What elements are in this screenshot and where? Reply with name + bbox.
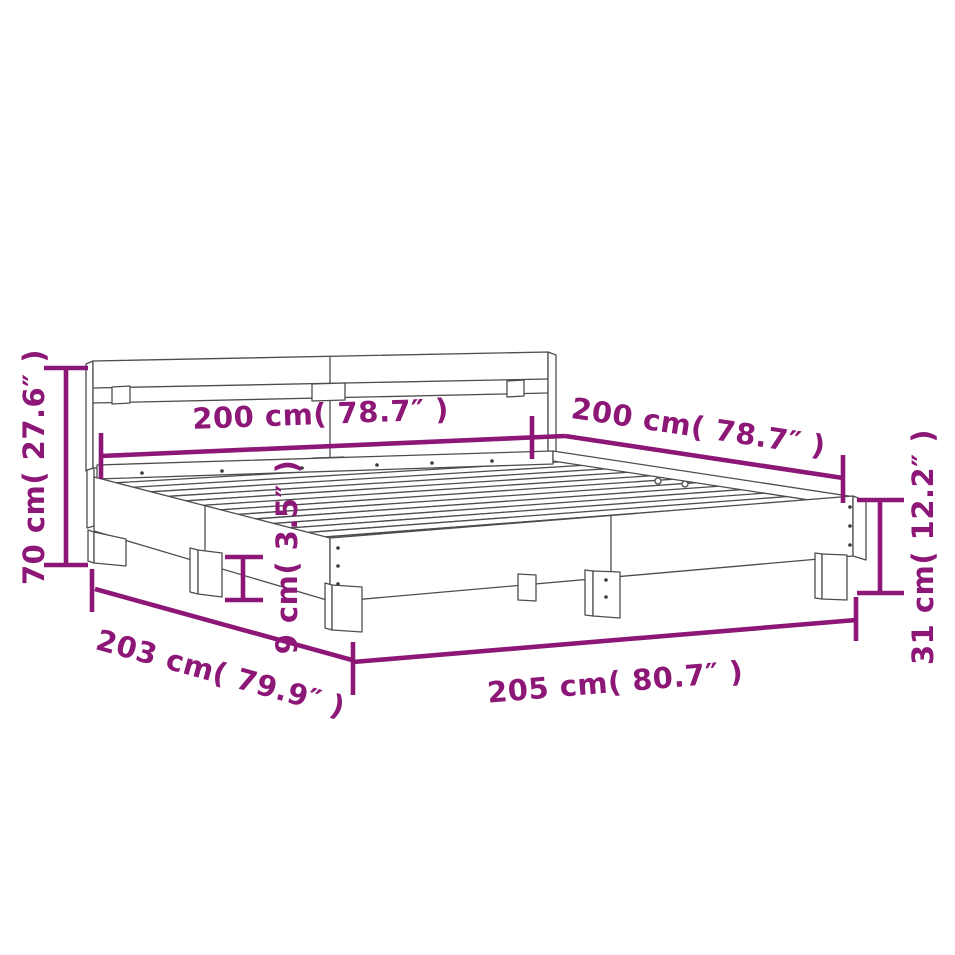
headboard-tab-right bbox=[507, 380, 524, 397]
left-mid-leg bbox=[198, 550, 222, 597]
front-corner-leg bbox=[332, 585, 362, 632]
screw-dot bbox=[336, 564, 340, 568]
headboard-right-edge bbox=[548, 352, 556, 455]
screw-dot bbox=[336, 546, 340, 550]
right-leg bbox=[822, 554, 847, 600]
screw-dot bbox=[848, 505, 852, 509]
center-big-leg-side bbox=[585, 570, 593, 616]
dimension-line bbox=[353, 620, 856, 662]
screw-dot bbox=[140, 471, 144, 475]
dimension-rail-height: 31 cm( 12.2″ ) bbox=[857, 429, 940, 665]
screw-dot bbox=[848, 543, 852, 547]
dimension-label: 70 cm( 27.6″ ) bbox=[17, 349, 51, 585]
headboard-tab-left bbox=[112, 386, 130, 404]
bed-frame-drawing bbox=[86, 352, 866, 632]
dimension-label: 9 cm( 3.5″ ) bbox=[270, 460, 304, 655]
front-corner-leg-side bbox=[325, 583, 332, 630]
headboard-left-leg-side bbox=[88, 530, 94, 563]
bed-frame-dimension-diagram: 70 cm( 27.6″ ) 200 cm( 78.7″ ) 200 cm( 7… bbox=[0, 0, 955, 955]
screw-dot bbox=[490, 459, 494, 463]
diagram-canvas: 70 cm( 27.6″ ) 200 cm( 78.7″ ) 200 cm( 7… bbox=[0, 0, 955, 955]
dimension-label: 203 cm( 79.9″ ) bbox=[92, 623, 348, 724]
screw-dot bbox=[604, 578, 608, 582]
screw-hole bbox=[655, 478, 661, 484]
screw-dot bbox=[375, 463, 379, 467]
dimension-total-height: 70 cm( 27.6″ ) bbox=[17, 349, 88, 585]
dimension-label: 31 cm( 12.2″ ) bbox=[906, 429, 940, 665]
dimension-label: 205 cm( 80.7″ ) bbox=[486, 654, 745, 709]
headboard-left-lower-panel bbox=[87, 468, 94, 528]
center-big-leg bbox=[593, 571, 620, 618]
left-mid-leg-side bbox=[190, 548, 198, 594]
screw-dot bbox=[848, 524, 852, 528]
dimension-label: 200 cm( 78.7″ ) bbox=[569, 391, 828, 463]
screw-dot bbox=[604, 595, 608, 599]
screw-dot bbox=[220, 469, 224, 473]
screw-dot bbox=[430, 461, 434, 465]
headboard-left-edge bbox=[86, 361, 93, 471]
center-small-leg bbox=[518, 574, 536, 601]
foot-rail-right-edge bbox=[853, 496, 866, 560]
right-leg-side bbox=[815, 553, 822, 599]
